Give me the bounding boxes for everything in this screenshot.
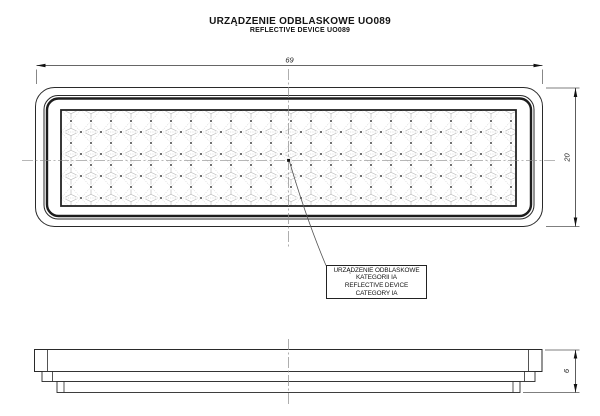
arrowhead-down	[574, 384, 578, 393]
callout-line-4: CATEGORY IA	[327, 290, 426, 298]
drawing-canvas: 69 20 6	[0, 0, 600, 416]
dimension-width: 69	[37, 56, 543, 85]
dimension-height: 20	[546, 88, 580, 227]
callout-line-3: REFLECTIVE DEVICE	[327, 282, 426, 290]
arrowhead-up	[574, 88, 578, 97]
dimension-thickness-label: 6	[562, 368, 571, 373]
side-view	[35, 339, 543, 404]
front-view	[22, 69, 557, 266]
technical-drawing-page: URZĄDZENIE ODBLASKOWE UO089 REFLECTIVE D…	[0, 0, 600, 416]
callout-line-1: URZĄDZENIE ODBLASKOWE	[327, 267, 426, 275]
arrowhead-right	[534, 64, 543, 68]
center-mark	[287, 159, 290, 162]
arrowhead-down	[574, 218, 578, 227]
callout-line-2: KATEGORII IA	[327, 274, 426, 282]
arrowhead-left	[37, 64, 46, 68]
arrowhead-up	[574, 350, 578, 359]
dimension-width-extension-lines	[37, 70, 543, 85]
callout-box: URZĄDZENIE ODBLASKOWE KATEGORII IA REFLE…	[326, 265, 427, 299]
dimension-height-label: 20	[563, 153, 572, 163]
dimension-width-label: 69	[285, 56, 294, 65]
